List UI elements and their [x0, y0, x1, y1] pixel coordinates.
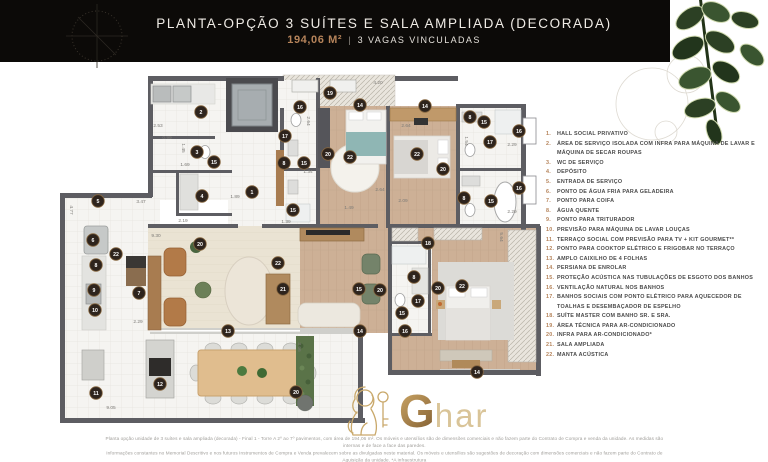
dimension-label: 1.69	[180, 162, 190, 168]
svg-text:14: 14	[422, 104, 428, 110]
legend-item-number: 4.	[546, 168, 551, 178]
dimension-label: 1.54	[463, 136, 469, 146]
legend-item-21: 21.SALA AMPLIADA	[546, 341, 764, 351]
brand-rest: har	[435, 399, 489, 432]
plan-marker-20: 20	[432, 282, 445, 295]
dimension-label: 5.64	[498, 232, 504, 242]
svg-text:15: 15	[481, 120, 487, 126]
plan-marker-9: 9	[88, 284, 101, 297]
plan-marker-15: 15	[485, 195, 498, 208]
lion-key-logo-icon	[341, 383, 397, 439]
plan-marker-8: 8	[278, 157, 291, 170]
dimension-label: 2.64	[305, 116, 311, 126]
svg-text:17: 17	[487, 140, 493, 146]
legend-item-number: 12.	[546, 245, 554, 255]
legend-item-label: PROTEÇÃO ACÚSTICA NAS TUBULAÇÕES DE ESGO…	[557, 275, 753, 281]
legend-item-number: 1.	[546, 130, 551, 140]
svg-text:14: 14	[357, 103, 363, 109]
legend-item-label: PREVISÃO PARA MÁQUINA DE LAVAR LOUÇAS	[557, 227, 690, 233]
plan-marker-15: 15	[208, 156, 221, 169]
legend-item-number: 10.	[546, 226, 554, 236]
legend-item-label: BANHOS SOCIAIS COM PONTO ELÉTRICO PARA A…	[557, 294, 742, 310]
legend-item-3: 3.WC DE SERVIÇO	[546, 159, 764, 169]
legend-item-label: HALL SOCIAL PRIVATIVO	[557, 131, 628, 137]
plan-marker-10: 10	[89, 304, 102, 317]
svg-text:15: 15	[356, 287, 362, 293]
svg-text:1: 1	[251, 190, 254, 196]
plan-marker-14: 14	[354, 99, 367, 112]
plan-marker-8: 8	[458, 192, 471, 205]
plan-marker-17: 17	[484, 136, 497, 149]
svg-text:20: 20	[435, 286, 441, 292]
plan-marker-3: 3	[191, 146, 204, 159]
plan-marker-4: 4	[196, 190, 209, 203]
legend-item-20: 20.INFRA PARA AR-CONDICIONADO*	[546, 331, 764, 341]
brand-logo: Ghar	[341, 383, 571, 439]
plan-marker-22: 22	[110, 248, 123, 261]
legend-item-label: INFRA PARA AR-CONDICIONADO*	[557, 332, 652, 338]
legend-item-number: 16.	[546, 284, 554, 294]
brand-text: Ghar	[399, 388, 488, 434]
plan-marker-12: 12	[154, 378, 167, 391]
dimension-label: 2.29	[507, 209, 517, 215]
legend-item-17: 17.BANHOS SOCIAIS COM PONTO ELÉTRICO PAR…	[546, 293, 764, 312]
legend-item-label: ÁGUA QUENTE	[557, 208, 599, 214]
plan-marker-16: 16	[513, 125, 526, 138]
svg-text:22: 22	[459, 284, 465, 290]
legend-item-number: 15.	[546, 274, 554, 284]
legend-item-label: PONTO PARA COIFA	[557, 198, 614, 204]
legend-item-15: 15.PROTEÇÃO ACÚSTICA NAS TUBULAÇÕES DE E…	[546, 274, 764, 284]
legend-item-number: 2.	[546, 140, 551, 150]
legend-item-1: 1.HALL SOCIAL PRIVATIVO	[546, 130, 764, 140]
svg-text:7: 7	[138, 291, 141, 297]
svg-text:12: 12	[157, 382, 163, 388]
plan-marker-15: 15	[287, 204, 300, 217]
legend-item-label: ÁREA DE SERVIÇO ISOLADA COM INFRA PARA M…	[557, 141, 755, 157]
svg-text:9: 9	[93, 288, 96, 294]
legend-item-label: ÁREA TÉCNICA PARA AR-CONDICIONADO	[557, 323, 675, 329]
svg-text:8: 8	[413, 275, 416, 281]
legend-item-label: SALA AMPLIADA	[557, 342, 604, 348]
plan-marker-6: 6	[87, 234, 100, 247]
legend-item-number: 19.	[546, 322, 554, 332]
dimension-label: 9.30	[151, 233, 161, 239]
legend-item-label: PONTO PARA COOKTOP ELÉTRICO E FRIGOBAR N…	[557, 246, 735, 252]
svg-text:15: 15	[290, 208, 296, 214]
svg-text:8: 8	[95, 263, 98, 269]
plan-marker-19: 19	[324, 87, 337, 100]
svg-text:22: 22	[275, 261, 281, 267]
legend-item-label: VENTILAÇÃO NATURAL NOS BANHOS	[557, 285, 664, 291]
dimension-label: 3.66	[296, 342, 302, 352]
dimension-label: 9.05	[106, 405, 116, 411]
svg-text:20: 20	[325, 152, 331, 158]
disclaimer-line-1: Planta opção unidade de 3 suítes e sala …	[102, 436, 667, 451]
legend-item-number: 11.	[546, 236, 554, 246]
plan-marker-20: 20	[194, 238, 207, 251]
plan-marker-16: 16	[294, 101, 307, 114]
dimension-label: 3.47	[136, 199, 146, 205]
legend-item-10: 10.PREVISÃO PARA MÁQUINA DE LAVAR LOUÇAS	[546, 226, 764, 236]
svg-text:10: 10	[92, 308, 98, 314]
svg-text:16: 16	[516, 129, 522, 135]
plan-marker-17: 17	[412, 295, 425, 308]
svg-text:4: 4	[201, 194, 204, 200]
legend-item-number: 6.	[546, 188, 551, 198]
svg-text:16: 16	[516, 186, 522, 192]
svg-text:20: 20	[440, 167, 446, 173]
legend-item-number: 22.	[546, 351, 554, 361]
plan-marker-8: 8	[408, 271, 421, 284]
legend-item-18: 18.SUÍTE MASTER COM BANHO SR. E SRA.	[546, 312, 764, 322]
plan-marker-7: 7	[133, 287, 146, 300]
plant-decoration	[668, 0, 768, 147]
svg-text:17: 17	[415, 299, 421, 305]
legend-list: 1.HALL SOCIAL PRIVATIVO2.ÁREA DE SERVIÇO…	[546, 130, 764, 360]
dimension-label: 2.64	[375, 187, 385, 193]
dimension-label: 1.39	[281, 219, 291, 225]
legend-item-7: 7.PONTO PARA COIFA	[546, 197, 764, 207]
dimension-label: 2.09	[398, 198, 408, 204]
svg-text:15: 15	[399, 311, 405, 317]
dimension-label: 2.29	[507, 142, 517, 148]
plan-marker-22: 22	[411, 148, 424, 161]
svg-text:5: 5	[97, 199, 100, 205]
legend-item-label: WC DE SERVIÇO	[557, 160, 604, 166]
legend-item-number: 5.	[546, 178, 551, 188]
legend-item-number: 20.	[546, 331, 554, 341]
svg-text:20: 20	[377, 288, 383, 294]
legend-item-label: ENTRADA DE SERVIÇO	[557, 179, 622, 185]
plan-marker-15: 15	[396, 307, 409, 320]
legend-item-label: SUÍTE MASTER COM BANHO SR. E SRA.	[557, 313, 671, 319]
plan-marker-20: 20	[437, 163, 450, 176]
legend-item-5: 5.ENTRADA DE SERVIÇO	[546, 178, 764, 188]
brand-letter-g: G	[399, 388, 435, 434]
legend-item-label: AMPLO CAIXILHO DE 4 FOLHAS	[557, 256, 647, 262]
legend-item-12: 12.PONTO PARA COOKTOP ELÉTRICO E FRIGOBA…	[546, 245, 764, 255]
legend-item-8: 8.ÁGUA QUENTE	[546, 207, 764, 217]
dimension-label: 1.89	[230, 194, 240, 200]
dimension-label: 1.49	[344, 205, 354, 211]
svg-text:18: 18	[425, 241, 431, 247]
dimension-label: 2.64	[401, 123, 411, 129]
legend-item-2: 2.ÁREA DE SERVIÇO ISOLADA COM INFRA PARA…	[546, 140, 764, 159]
plan-marker-5: 5	[92, 195, 105, 208]
legend-item-19: 19.ÁREA TÉCNICA PARA AR-CONDICIONADO	[546, 322, 764, 332]
plan-marker-22: 22	[456, 280, 469, 293]
plan-marker-8: 8	[90, 259, 103, 272]
compass-icon	[66, 4, 128, 68]
legend-item-number: 7.	[546, 197, 551, 207]
svg-text:3: 3	[196, 150, 199, 156]
svg-text:22: 22	[113, 252, 119, 258]
svg-text:14: 14	[357, 329, 363, 335]
svg-text:2: 2	[200, 110, 203, 116]
legend-item-label: DEPÓSITO	[557, 169, 587, 175]
plan-marker-20: 20	[290, 386, 303, 399]
dimension-label: 1.34	[303, 169, 313, 175]
plan-marker-1: 1	[246, 186, 259, 199]
plan-marker-18: 18	[422, 237, 435, 250]
plan-marker-16: 16	[399, 325, 412, 338]
elevator	[226, 78, 278, 132]
svg-text:8: 8	[283, 161, 286, 167]
svg-text:16: 16	[402, 329, 408, 335]
plan-marker-14: 14	[419, 100, 432, 113]
legend-item-label: TERRAÇO SOCIAL COM PREVISÃO PARA TV + KI…	[557, 237, 734, 243]
legend-item-9: 9.PONTO PARA TRITURADOR	[546, 216, 764, 226]
svg-text:15: 15	[211, 160, 217, 166]
plan-marker-21: 21	[277, 283, 290, 296]
svg-text:21: 21	[280, 287, 286, 293]
disclaimer-line-2: Informações constantes no Memorial Descr…	[102, 451, 667, 462]
svg-text:22: 22	[414, 152, 420, 158]
legend-item-number: 17.	[546, 293, 554, 303]
plan-marker-20: 20	[322, 148, 335, 161]
svg-text:13: 13	[225, 329, 231, 335]
legend-item-label: PONTO DE ÁGUA FRIA PARA GELADEIRA	[557, 189, 674, 195]
plan-marker-16: 16	[513, 182, 526, 195]
legend-item-22: 22.MANTA ACÚSTICA	[546, 351, 764, 361]
disclaimer: Planta opção unidade de 3 suítes e sala …	[102, 436, 667, 462]
legend-item-number: 3.	[546, 159, 551, 169]
plan-marker-11: 11	[90, 387, 103, 400]
svg-text:15: 15	[301, 161, 307, 167]
plan-marker-15: 15	[478, 116, 491, 129]
legend-item-4: 4.DEPÓSITO	[546, 168, 764, 178]
dimension-label: 1.45	[180, 143, 186, 153]
legend-item-number: 8.	[546, 207, 551, 217]
svg-text:8: 8	[469, 115, 472, 121]
svg-text:11: 11	[93, 391, 99, 397]
plan-marker-20: 20	[374, 284, 387, 297]
legend-item-number: 13.	[546, 255, 554, 265]
svg-text:20: 20	[197, 242, 203, 248]
plan-marker-15: 15	[298, 157, 311, 170]
svg-text:15: 15	[488, 199, 494, 205]
plan-marker-17: 17	[279, 130, 292, 143]
svg-text:14: 14	[474, 370, 480, 376]
dimension-label: 2.53	[153, 123, 163, 129]
svg-text:19: 19	[327, 91, 333, 97]
plan-marker-22: 22	[272, 257, 285, 270]
legend-item-14: 14.PERSIANA DE ENROLAR	[546, 264, 764, 274]
dimension-label: 2.29	[133, 319, 143, 325]
plan-marker-13: 13	[222, 325, 235, 338]
dimension-label: 2.19	[178, 218, 188, 224]
flyer-page: PLANTA-OPÇÃO 3 SUÍTES E SALA AMPLIADA (D…	[0, 0, 768, 462]
legend-item-11: 11.TERRAÇO SOCIAL COM PREVISÃO PARA TV +…	[546, 236, 764, 246]
legend-item-number: 21.	[546, 341, 554, 351]
dimension-label: 0.99	[162, 135, 172, 141]
legend-item-6: 6.PONTO DE ÁGUA FRIA PARA GELADEIRA	[546, 188, 764, 198]
svg-text:22: 22	[347, 155, 353, 161]
legend-item-16: 16.VENTILAÇÃO NATURAL NOS BANHOS	[546, 284, 764, 294]
legend-item-number: 18.	[546, 312, 554, 322]
plan-marker-8: 8	[464, 111, 477, 124]
legend-item-number: 14.	[546, 264, 554, 274]
legend-item-13: 13.AMPLO CAIXILHO DE 4 FOLHAS	[546, 255, 764, 265]
dimension-label: 4.77	[68, 205, 74, 215]
plan-marker-15: 15	[353, 283, 366, 296]
plan-marker-2: 2	[195, 106, 208, 119]
dimension-label: 4.20	[373, 80, 383, 86]
svg-text:16: 16	[297, 105, 303, 111]
svg-text:6: 6	[92, 238, 95, 244]
svg-text:17: 17	[282, 134, 288, 140]
svg-text:8: 8	[463, 196, 466, 202]
legend-item-label: PERSIANA DE ENROLAR	[557, 265, 627, 271]
legend-item-number: 9.	[546, 216, 551, 226]
legend-item-label: PONTO PARA TRITURADOR	[557, 217, 635, 223]
plan-marker-14: 14	[354, 325, 367, 338]
plan-marker-22: 22	[344, 151, 357, 164]
svg-text:20: 20	[293, 390, 299, 396]
legend-item-label: MANTA ACÚSTICA	[557, 352, 609, 358]
plan-marker-14: 14	[471, 366, 484, 379]
